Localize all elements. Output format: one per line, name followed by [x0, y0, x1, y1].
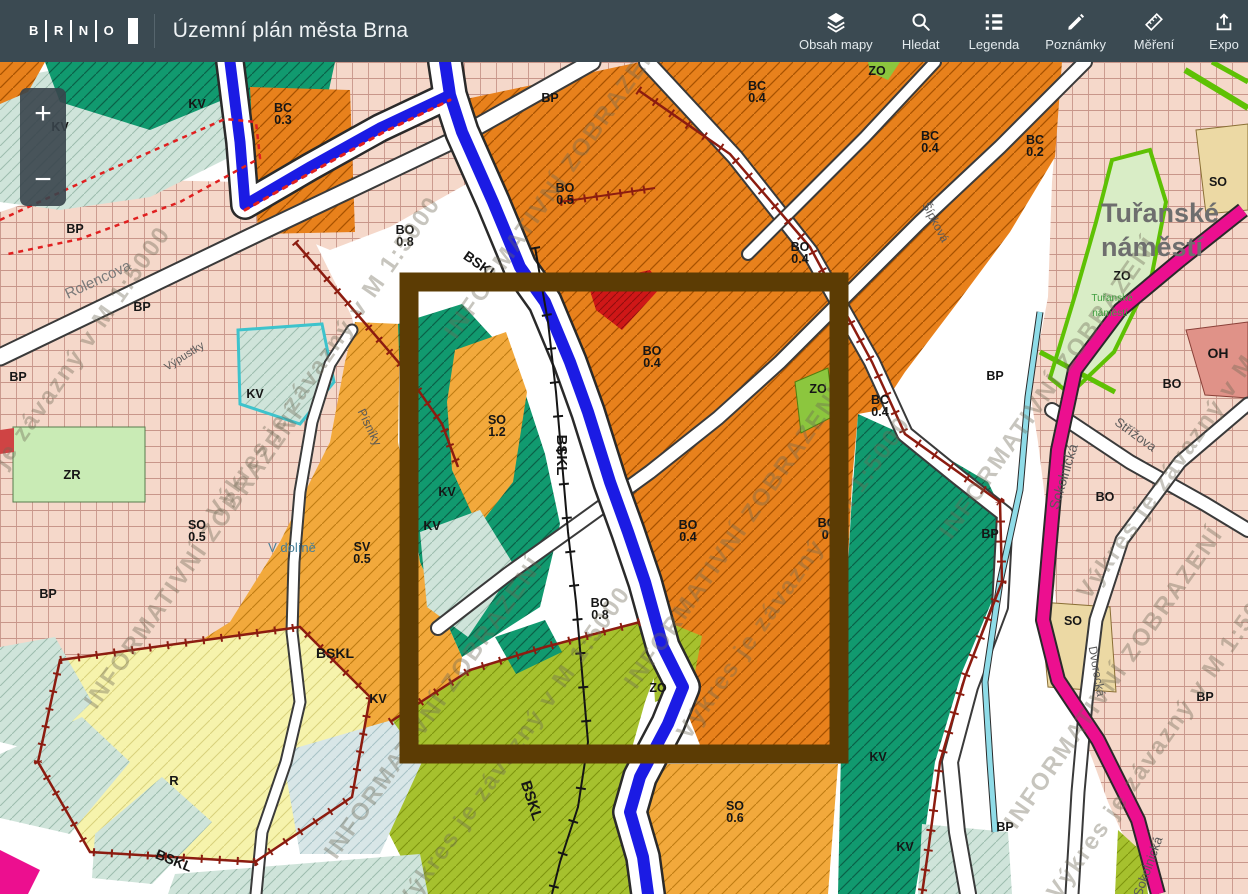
logo-letter: N	[72, 19, 95, 43]
svg-text:BSKL: BSKL	[553, 435, 570, 476]
zoom-out-button[interactable]: −	[20, 154, 66, 206]
svg-text:R: R	[169, 773, 179, 788]
toolbar-item-poznamky[interactable]: Poznámky	[1045, 11, 1106, 52]
header-divider	[154, 14, 155, 48]
logo-block	[128, 18, 138, 44]
zoom-control: + −	[20, 88, 66, 206]
app-window: BRNO Územní plán města Brna Obsah mapy H…	[0, 0, 1248, 894]
header-bar: BRNO Územní plán města Brna Obsah mapy H…	[0, 0, 1248, 62]
toolbar-item-label: Poznámky	[1045, 37, 1106, 52]
svg-text:Tuřanské: Tuřanské	[1091, 293, 1133, 304]
toolbar-item-label: Expo	[1209, 37, 1239, 52]
svg-text:BP: BP	[39, 587, 56, 601]
svg-text:BO: BO	[1163, 377, 1182, 391]
svg-text:ZR: ZR	[63, 467, 81, 482]
toolbar-item-label: Hledat	[902, 37, 940, 52]
svg-text:KV: KV	[246, 387, 264, 401]
svg-text:BC0.4: BC0.4	[921, 129, 939, 155]
svg-text:BO0.4: BO0.4	[643, 344, 662, 370]
svg-text:BP: BP	[541, 91, 558, 105]
export-icon	[1213, 11, 1235, 33]
map-viewport[interactable]: BC0.3BPBC0.4BC0.4BC0.2BO0.5BO0.8BO0.4BO0…	[0, 62, 1248, 894]
svg-text:KV: KV	[896, 840, 914, 854]
brno-logo[interactable]: BRNO	[22, 18, 138, 44]
svg-text:BC0.3: BC0.3	[274, 101, 292, 127]
svg-text:KV: KV	[438, 485, 456, 499]
svg-text:BP: BP	[981, 527, 998, 541]
zone-so-06	[638, 764, 838, 894]
search-icon	[910, 11, 932, 33]
svg-text:BC0.2: BC0.2	[1026, 133, 1044, 159]
ruler-icon	[1143, 11, 1165, 33]
svg-text:BP: BP	[133, 300, 150, 314]
toolbar-item-mereni[interactable]: Měření	[1132, 11, 1176, 52]
svg-text:BP: BP	[986, 369, 1003, 383]
svg-text:BO: BO	[1096, 490, 1115, 504]
svg-text:KV: KV	[423, 519, 441, 533]
toolbar-item-label: Měření	[1134, 37, 1174, 52]
toolbar-item-label: Obsah mapy	[799, 37, 873, 52]
svg-text:BO0.4: BO0.4	[791, 240, 810, 266]
toolbar: Obsah mapy Hledat Legenda Poznámky Měřen…	[799, 11, 1248, 52]
svg-text:SO1.2: SO1.2	[488, 413, 506, 439]
svg-text:náměstí: náměstí	[1092, 308, 1128, 319]
svg-text:BSKL: BSKL	[316, 645, 355, 661]
logo-letter: O	[97, 19, 121, 43]
svg-text:BO0.4: BO0.4	[679, 518, 698, 544]
svg-text:KV: KV	[369, 692, 387, 706]
svg-text:SO: SO	[1064, 614, 1082, 628]
zoom-in-button[interactable]: +	[20, 88, 66, 140]
toolbar-item-obsah-mapy[interactable]: Obsah mapy	[799, 11, 873, 52]
svg-text:BC0.4: BC0.4	[871, 393, 889, 419]
svg-text:SV0.5: SV0.5	[353, 540, 371, 566]
svg-text:SO: SO	[1209, 175, 1227, 189]
legend-icon	[983, 11, 1005, 33]
svg-text:náměstí: náměstí	[1101, 232, 1205, 262]
svg-text:OH: OH	[1208, 345, 1229, 361]
toolbar-item-export[interactable]: Expo	[1202, 11, 1246, 52]
logo-letter: B	[22, 19, 45, 43]
svg-text:ZO: ZO	[649, 681, 667, 695]
svg-text:BP: BP	[9, 370, 26, 384]
logo-letter: R	[47, 19, 70, 43]
toolbar-item-hledat[interactable]: Hledat	[899, 11, 943, 52]
svg-text:SO0.6: SO0.6	[726, 799, 744, 825]
svg-text:Tuřanské: Tuřanské	[1101, 198, 1219, 228]
svg-text:KV: KV	[188, 97, 206, 111]
layers-icon	[825, 11, 847, 33]
svg-text:BP: BP	[66, 222, 83, 236]
svg-text:ZO: ZO	[868, 64, 886, 78]
svg-text:V dolíně: V dolíně	[268, 540, 316, 555]
svg-text:BC0.4: BC0.4	[748, 79, 766, 105]
toolbar-item-legenda[interactable]: Legenda	[969, 11, 1020, 52]
notes-icon	[1065, 11, 1087, 33]
toolbar-item-label: Legenda	[969, 37, 1020, 52]
page-title: Územní plán města Brna	[173, 19, 409, 43]
svg-text:KV: KV	[869, 750, 887, 764]
map-svg[interactable]: BC0.3BPBC0.4BC0.4BC0.2BO0.5BO0.8BO0.4BO0…	[0, 62, 1248, 894]
